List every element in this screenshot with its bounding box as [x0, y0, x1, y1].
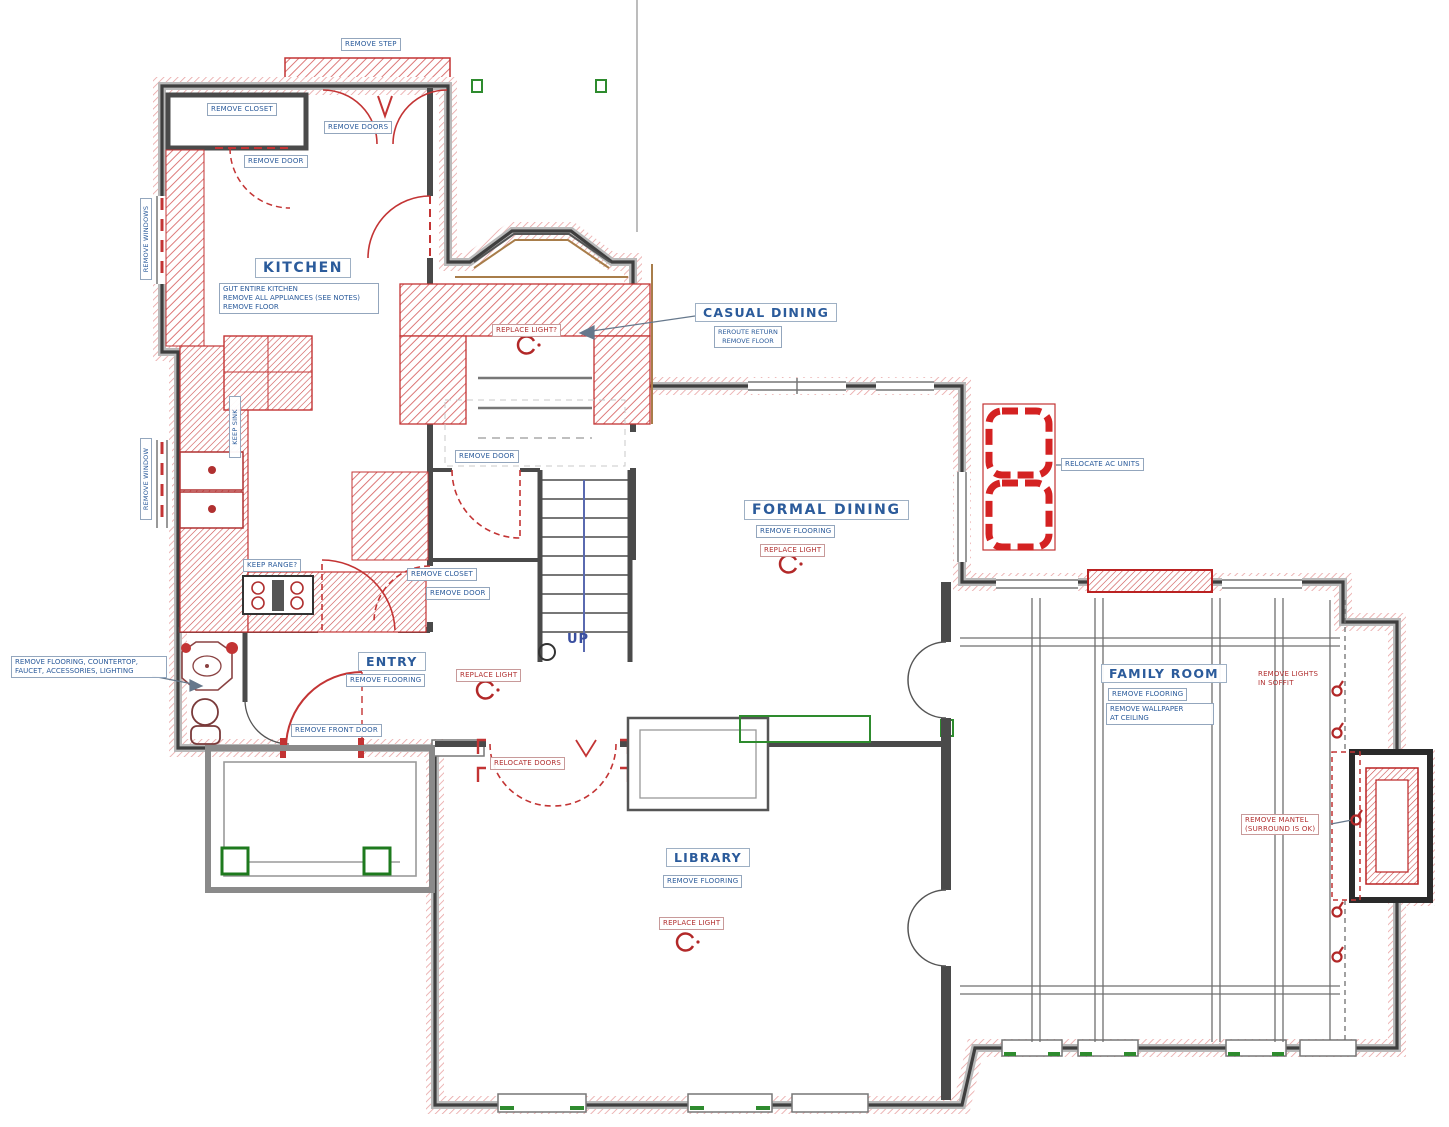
label-remove-door-hall2: REMOVE DOOR: [426, 587, 490, 600]
label-keep-sink: KEEP SINK: [229, 396, 241, 458]
label-remove-front-door: REMOVE FRONT DOOR: [291, 724, 382, 737]
entry-notes: REMOVE FLOORING: [346, 674, 425, 687]
label-replace-light-nook: REPLACE LIGHT?: [492, 324, 561, 337]
room-title-kitchen: KITCHEN: [255, 258, 351, 278]
fireplace: [1332, 752, 1430, 900]
label-replace-light-entry: REPLACE LIGHT: [456, 669, 521, 682]
label-remove-door-mudroom: REMOVE DOOR: [244, 155, 308, 168]
front-porch: [208, 748, 432, 890]
label-relocate-ac-units: RELOCATE AC UNITS: [1061, 458, 1144, 471]
ac-units: [983, 404, 1055, 550]
room-title-casual-dining: CASUAL DINING: [695, 303, 837, 322]
label-remove-step: REMOVE STEP: [341, 38, 401, 51]
label-replace-light-formal-dining: REPLACE LIGHT: [760, 544, 825, 557]
formal-dining-notes: REMOVE FLOORING: [756, 525, 835, 538]
family-room-doors: [908, 642, 946, 966]
label-remove-closet-hall: REMOVE CLOSET: [407, 568, 477, 581]
room-title-library: LIBRARY: [666, 848, 750, 867]
kitchen-notes: GUT ENTIRE KITCHEN REMOVE ALL APPLIANCES…: [219, 283, 379, 314]
label-remove-window-lower: REMOVE WINDOW: [140, 438, 152, 520]
label-remove-doors: REMOVE DOORS: [324, 121, 392, 134]
family-room-ceiling-note: REMOVE WALLPAPER AT CEILING: [1106, 703, 1214, 725]
demo-hatch: [166, 150, 650, 632]
label-remove-windows-upper: REMOVE WINDOWS: [140, 198, 152, 280]
label-remove-closet-mudroom: REMOVE CLOSET: [207, 103, 277, 116]
powder-room-note: REMOVE FLOORING, COUNTERTOP, FAUCET, ACC…: [11, 656, 167, 678]
label-relocate-doors: RELOCATE DOORS: [490, 757, 565, 770]
label-keep-range: KEEP RANGE?: [243, 559, 301, 572]
label-stairs-up: UP: [567, 632, 589, 647]
room-title-formal-dining: FORMAL DINING: [744, 500, 909, 520]
powder-fixtures: [181, 642, 289, 744]
label-remove-mantel: REMOVE MANTEL (SURROUND IS OK): [1241, 814, 1319, 835]
label-remove-door-hall: REMOVE DOOR: [455, 450, 519, 463]
room-title-entry: ENTRY: [358, 652, 426, 671]
label-replace-light-library: REPLACE LIGHT: [659, 917, 724, 930]
library-builtin: [628, 716, 870, 810]
label-remove-lights-soffit: REMOVE LIGHTS IN SOFFIT: [1255, 669, 1321, 688]
plan-drawing: [0, 0, 1449, 1127]
family-room-notes: REMOVE FLOORING: [1108, 688, 1187, 701]
room-title-family-room: FAMILY ROOM: [1101, 664, 1227, 683]
nook-table: [478, 378, 592, 438]
library-notes: REMOVE FLOORING: [663, 875, 742, 888]
casual-dining-notes: REROUTE RETURN REMOVE FLOOR: [714, 326, 782, 348]
light-symbols: [477, 336, 803, 950]
floor-plan: REMOVE STEP REMOVE CLOSET REMOVE DOORS R…: [0, 0, 1449, 1127]
